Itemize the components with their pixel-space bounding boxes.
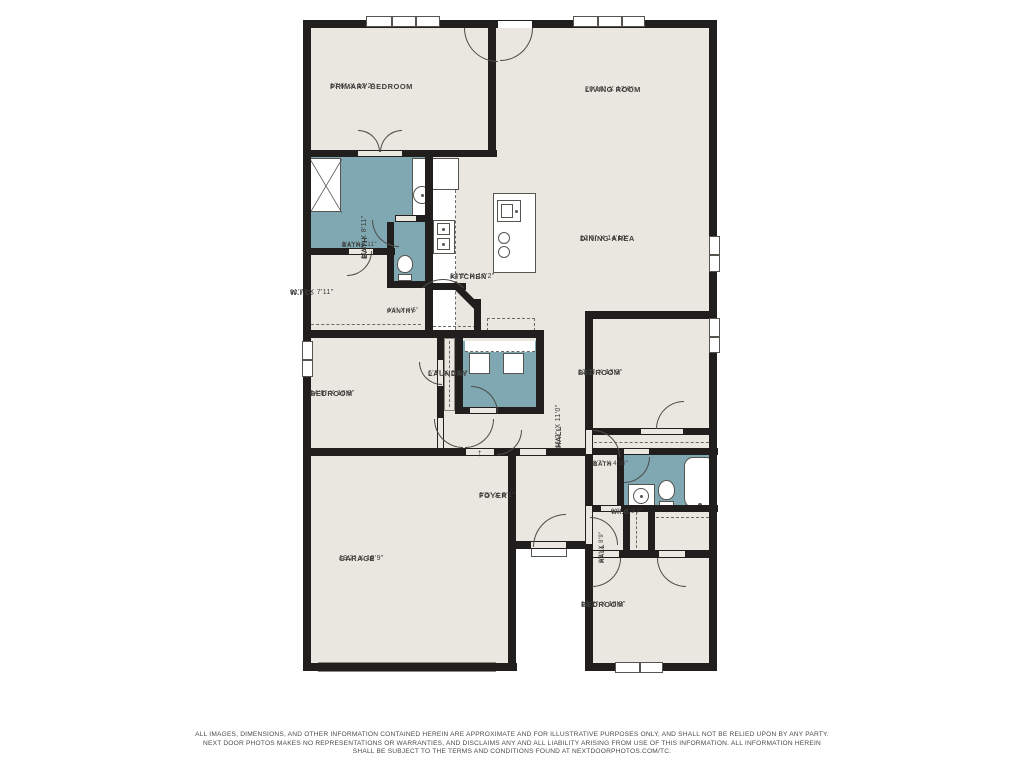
room-dims: 12'6" X 14'10" (580, 234, 629, 243)
disclaimer-line-2: NEXT DOOR PHOTOS MAKES NO REPRESENTATION… (0, 740, 1024, 749)
window-mullion (303, 359, 312, 361)
window-mullion (597, 17, 599, 26)
door-opening (659, 551, 685, 557)
wall-segment (428, 330, 544, 338)
window-mullion (415, 17, 417, 26)
cooktop (498, 246, 510, 258)
washer (469, 353, 490, 374)
room-dims: 14'8" X 10'8" (310, 389, 355, 398)
room-dims: 8'7" X 4'10" (593, 461, 628, 468)
window (573, 16, 645, 27)
wall-segment (508, 448, 516, 671)
kitchen-counter (432, 190, 456, 330)
room-dims: 11'7" X 7'11" (290, 288, 334, 297)
stove (442, 243, 445, 246)
door-opening (498, 21, 532, 28)
wall-segment (303, 663, 517, 671)
closet-rod (465, 351, 535, 352)
disclaimer-line-3: SHALL BE SUBJECT TO THE TERMS AND CONDIT… (0, 748, 1024, 757)
disclaimer: ALL IMAGES, DIMENSIONS, AND OTHER INFORM… (0, 731, 1024, 757)
floor-plan: ↑ PRIMARY BEDROOM 17'6" X 12'2" LIVING R… (0, 0, 1024, 768)
window-mullion (710, 336, 719, 338)
window (302, 341, 313, 377)
shower (309, 158, 341, 212)
room-dims: 20'10" X 12'6" (585, 85, 634, 94)
disclaimer-line-1: ALL IMAGES, DIMENSIONS, AND OTHER INFORM… (0, 731, 1024, 740)
room-dims: 4'6" X 4'5" (387, 308, 419, 315)
window (709, 236, 720, 272)
window (615, 662, 663, 673)
room-dims: 17'6" X 12'2" (330, 82, 375, 91)
room-dims: 12'2" X 13'3" (578, 368, 623, 377)
door-opening (586, 430, 592, 454)
room-dims: 6'5" X 9'1" (479, 491, 515, 500)
wall-segment (585, 311, 717, 319)
floorplan-page: ↑ PRIMARY BEDROOM 17'6" X 12'2" LIVING R… (0, 0, 1024, 768)
door-opening (520, 449, 546, 455)
cooktop (498, 232, 510, 244)
closet-rod (656, 517, 714, 518)
door-opening (641, 429, 683, 434)
room-dims: 19'2" X 19'9" (339, 554, 384, 563)
room-dims: 12'2" X 10'8" (581, 600, 626, 609)
wall-segment (585, 311, 593, 671)
sink-drain (421, 194, 424, 197)
island-sink-basin (501, 204, 513, 218)
wall-segment (536, 337, 544, 414)
island-sink-faucet (515, 210, 518, 213)
closet-rod (311, 324, 421, 325)
window-mullion (639, 663, 641, 672)
room-dims: 6'3" X 6'11" (428, 369, 468, 378)
toilet-tank (398, 274, 412, 281)
window (366, 16, 440, 27)
entry-arrow: ↑ (477, 448, 491, 462)
room-dims: 3'4" X 4'11" (342, 242, 377, 249)
door-opening (396, 216, 416, 221)
window (709, 318, 720, 353)
window-mullion (391, 17, 393, 26)
stove (442, 228, 445, 231)
wall-segment (455, 407, 544, 414)
wall-segment (648, 509, 655, 550)
room-dims: 11'7" X 8'11" (360, 215, 369, 259)
fridge (432, 158, 459, 190)
wall-segment (303, 330, 444, 338)
toilet2-bowl (658, 480, 675, 500)
window-mullion (710, 254, 719, 256)
room-dims: 14'2" X 17'2" (450, 272, 495, 281)
sink2-drain (640, 495, 643, 498)
dryer (503, 353, 524, 374)
door-opening (624, 449, 649, 454)
window-mullion (621, 17, 623, 26)
closet-rod (433, 326, 476, 327)
room-dims: 3'3" X 8'9" (599, 531, 606, 563)
toilet-bowl (397, 255, 413, 273)
room-dims: 11'2" X 11'0" (554, 404, 563, 448)
closet-rod (636, 512, 637, 548)
floor-area (303, 455, 516, 671)
porch-step (531, 548, 567, 557)
room-dims: 6'3" X 3'7" (611, 509, 643, 516)
wall-segment (425, 157, 433, 338)
